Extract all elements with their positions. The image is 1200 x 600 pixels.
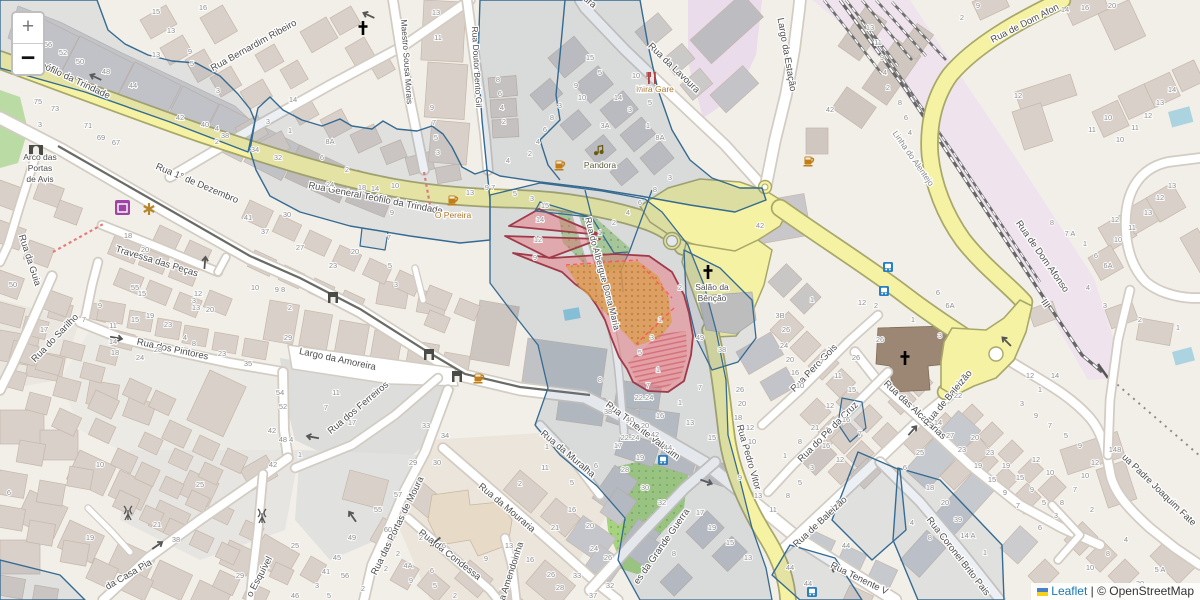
- svg-text:10: 10: [1104, 113, 1112, 122]
- svg-text:11: 11: [541, 463, 549, 472]
- svg-text:11: 11: [109, 321, 117, 330]
- svg-text:1: 1: [983, 548, 987, 557]
- svg-text:5: 5: [388, 261, 392, 270]
- svg-text:33: 33: [422, 421, 430, 430]
- svg-text:4: 4: [626, 208, 630, 217]
- svg-text:1: 1: [810, 295, 814, 304]
- svg-text:Bênção: Bênção: [698, 293, 727, 303]
- svg-text:10: 10: [1114, 235, 1122, 244]
- svg-text:2: 2: [528, 149, 532, 158]
- svg-text:6A: 6A: [945, 301, 954, 310]
- svg-text:44: 44: [842, 541, 850, 550]
- svg-text:18: 18: [124, 231, 132, 240]
- svg-text:7: 7: [387, 233, 391, 242]
- svg-text:48 4: 48 4: [279, 435, 294, 444]
- svg-text:11: 11: [834, 371, 842, 380]
- svg-text:16: 16: [822, 441, 830, 450]
- svg-text:7: 7: [82, 315, 86, 324]
- svg-text:6: 6: [543, 125, 547, 134]
- svg-text:11: 11: [1088, 125, 1096, 134]
- svg-text:3: 3: [1103, 301, 1107, 310]
- svg-text:4A: 4A: [403, 561, 412, 570]
- svg-text:2: 2: [384, 564, 388, 573]
- svg-text:5 A: 5 A: [1155, 565, 1166, 574]
- svg-text:8A: 8A: [655, 133, 664, 142]
- svg-text:1: 1: [678, 398, 682, 407]
- svg-text:13: 13: [432, 8, 440, 17]
- svg-text:52: 52: [279, 402, 287, 411]
- svg-text:15: 15: [726, 538, 734, 547]
- svg-text:29: 29: [409, 458, 417, 467]
- svg-text:8: 8: [1106, 549, 1110, 558]
- svg-text:10: 10: [1081, 471, 1089, 480]
- svg-text:27: 27: [946, 431, 954, 440]
- svg-text:Portas: Portas: [28, 163, 53, 173]
- svg-text:23: 23: [986, 448, 994, 457]
- svg-text:23: 23: [164, 320, 172, 329]
- svg-text:23: 23: [329, 261, 337, 270]
- svg-text:16: 16: [842, 415, 850, 424]
- svg-text:de Avis: de Avis: [26, 174, 53, 184]
- svg-text:42: 42: [268, 426, 276, 435]
- svg-text:41: 41: [244, 213, 252, 222]
- svg-text:6: 6: [1038, 523, 1042, 532]
- svg-text:11: 11: [434, 33, 442, 42]
- svg-text:3: 3: [810, 463, 814, 472]
- svg-text:3: 3: [628, 105, 632, 114]
- svg-text:12: 12: [836, 455, 844, 464]
- svg-text:12: 12: [826, 401, 834, 410]
- svg-text:15: 15: [848, 385, 856, 394]
- svg-text:4: 4: [1086, 283, 1090, 292]
- svg-text:16: 16: [526, 555, 534, 564]
- svg-text:1: 1: [911, 315, 915, 324]
- svg-text:9: 9: [98, 301, 102, 310]
- svg-text:49: 49: [696, 333, 704, 342]
- svg-text:6: 6: [904, 113, 908, 122]
- svg-text:35: 35: [244, 359, 252, 368]
- svg-text:2: 2: [345, 165, 349, 174]
- svg-text:12: 12: [1032, 455, 1040, 464]
- svg-text:29: 29: [236, 571, 244, 580]
- svg-text:6: 6: [936, 288, 940, 297]
- svg-text:2: 2: [396, 549, 400, 558]
- svg-text:26: 26: [604, 553, 612, 562]
- svg-text:25: 25: [916, 448, 924, 457]
- svg-text:55: 55: [374, 505, 382, 514]
- svg-text:18: 18: [734, 413, 742, 422]
- svg-text:7 A: 7 A: [1065, 229, 1076, 238]
- svg-text:30: 30: [641, 483, 649, 492]
- svg-text:6: 6: [320, 153, 324, 162]
- svg-text:5: 5: [434, 133, 438, 142]
- svg-text:1: 1: [545, 442, 549, 451]
- svg-text:42: 42: [176, 113, 184, 122]
- svg-text:9: 9: [409, 576, 413, 585]
- svg-text:12: 12: [858, 298, 866, 307]
- svg-text:50: 50: [76, 57, 84, 66]
- svg-text:20: 20: [206, 305, 214, 314]
- svg-text:37: 37: [261, 227, 269, 236]
- svg-text:17: 17: [696, 508, 704, 517]
- svg-text:44: 44: [786, 563, 794, 572]
- svg-text:13: 13: [744, 553, 752, 562]
- svg-text:8: 8: [598, 375, 602, 384]
- svg-text:9: 9: [1003, 488, 1007, 497]
- svg-text:9: 9: [188, 47, 192, 56]
- svg-text:26: 26: [782, 325, 790, 334]
- svg-text:15: 15: [988, 475, 996, 484]
- svg-text:6A: 6A: [1103, 261, 1112, 270]
- svg-text:9: 9: [976, 1, 980, 10]
- svg-text:10: 10: [251, 283, 259, 292]
- svg-text:14: 14: [1168, 85, 1176, 94]
- svg-text:5: 5: [513, 189, 517, 198]
- svg-text:42: 42: [651, 430, 659, 439]
- svg-text:1: 1: [598, 228, 602, 237]
- svg-text:18: 18: [111, 348, 119, 357]
- svg-text:13: 13: [1156, 98, 1164, 107]
- svg-text:4: 4: [500, 103, 504, 112]
- svg-text:26: 26: [547, 570, 555, 579]
- svg-text:52: 52: [59, 48, 67, 57]
- svg-text:14: 14: [934, 418, 942, 427]
- svg-text:13: 13: [686, 418, 694, 427]
- svg-text:3A: 3A: [600, 121, 609, 130]
- svg-text:9 8: 9 8: [275, 285, 285, 294]
- svg-text:1: 1: [658, 315, 662, 324]
- svg-text:20: 20: [141, 245, 149, 254]
- svg-text:1: 1: [288, 126, 292, 135]
- svg-text:11: 11: [332, 388, 340, 397]
- svg-text:3: 3: [938, 331, 942, 340]
- svg-text:32: 32: [658, 498, 666, 507]
- svg-text:Pandora: Pandora: [584, 160, 616, 170]
- svg-text:60: 60: [384, 525, 392, 534]
- svg-text:1: 1: [1083, 239, 1087, 248]
- svg-text:28: 28: [556, 583, 564, 592]
- svg-text:2: 2: [453, 591, 457, 600]
- svg-text:42: 42: [826, 105, 834, 114]
- svg-text:9: 9: [1030, 485, 1034, 494]
- svg-text:7: 7: [1073, 485, 1077, 494]
- svg-text:3: 3: [394, 280, 398, 289]
- svg-text:8: 8: [496, 75, 500, 84]
- svg-text:3: 3: [266, 117, 270, 126]
- svg-text:12: 12: [1156, 193, 1164, 202]
- svg-text:21: 21: [551, 523, 559, 532]
- svg-text:25: 25: [291, 541, 299, 550]
- svg-text:13: 13: [466, 188, 474, 197]
- svg-text:39: 39: [954, 515, 962, 524]
- svg-text:1: 1: [646, 121, 650, 130]
- svg-text:8: 8: [1050, 218, 1054, 227]
- svg-text:37: 37: [589, 591, 597, 600]
- svg-text:30: 30: [283, 210, 291, 219]
- svg-text:15: 15: [1016, 473, 1024, 482]
- svg-text:19: 19: [146, 311, 154, 320]
- svg-text:5: 5: [433, 581, 437, 590]
- svg-text:69: 69: [97, 133, 105, 142]
- svg-text:15: 15: [131, 315, 139, 324]
- svg-text:10: 10: [578, 93, 586, 102]
- svg-text:15: 15: [708, 433, 716, 442]
- svg-text:4: 4: [536, 137, 540, 146]
- svg-text:4: 4: [1124, 535, 1128, 544]
- svg-text:14 A: 14 A: [960, 531, 975, 540]
- svg-text:2: 2: [215, 137, 219, 146]
- svg-text:44: 44: [804, 579, 812, 588]
- svg-text:32: 32: [606, 581, 614, 590]
- svg-text:9: 9: [738, 473, 742, 482]
- svg-text:9: 9: [1078, 441, 1082, 450]
- svg-text:14: 14: [614, 93, 622, 102]
- svg-text:3: 3: [530, 194, 534, 203]
- svg-text:17: 17: [40, 325, 48, 334]
- svg-text:1: 1: [1176, 323, 1180, 332]
- svg-text:20: 20: [941, 498, 949, 507]
- svg-text:Salão da: Salão da: [695, 282, 729, 292]
- svg-text:9: 9: [484, 554, 488, 563]
- svg-text:2: 2: [1138, 315, 1142, 324]
- svg-text:18: 18: [926, 483, 934, 492]
- svg-text:5: 5: [638, 348, 642, 357]
- svg-text:9 7: 9 7: [485, 183, 495, 192]
- svg-text:3: 3: [1054, 511, 1058, 520]
- svg-text:148: 148: [1109, 445, 1122, 454]
- svg-text:13: 13: [754, 491, 762, 500]
- svg-text:44: 44: [129, 81, 137, 90]
- svg-text:3: 3: [436, 148, 440, 157]
- svg-text:12: 12: [1144, 111, 1152, 120]
- svg-text:4: 4: [183, 333, 187, 342]
- svg-text:14: 14: [536, 215, 544, 224]
- svg-text:12: 12: [1014, 91, 1022, 100]
- svg-text:16: 16: [199, 3, 207, 12]
- svg-text:50: 50: [9, 280, 17, 289]
- svg-text:9: 9: [880, 53, 884, 62]
- svg-text:2: 2: [518, 479, 522, 488]
- svg-text:1: 1: [783, 451, 787, 460]
- svg-text:20: 20: [971, 433, 979, 442]
- svg-text:3: 3: [668, 173, 672, 182]
- svg-text:13: 13: [505, 541, 513, 550]
- svg-text:28: 28: [621, 465, 629, 474]
- svg-text:13: 13: [866, 23, 874, 32]
- svg-text:Arco das: Arco das: [23, 152, 57, 162]
- svg-text:20: 20: [1108, 1, 1116, 10]
- svg-text:54: 54: [276, 388, 284, 397]
- svg-text:7: 7: [324, 403, 328, 412]
- svg-text:6: 6: [7, 488, 11, 497]
- svg-text:14: 14: [371, 184, 379, 193]
- svg-text:7: 7: [820, 357, 824, 366]
- svg-text:11: 11: [874, 38, 882, 47]
- svg-text:8: 8: [192, 339, 196, 348]
- svg-text:15: 15: [541, 201, 549, 210]
- svg-text:2: 2: [874, 301, 878, 310]
- svg-text:12: 12: [746, 423, 754, 432]
- svg-text:13: 13: [1168, 181, 1176, 190]
- svg-text:2: 2: [288, 303, 292, 312]
- svg-text:6: 6: [1094, 251, 1098, 260]
- svg-text:2: 2: [502, 117, 506, 126]
- svg-text:3: 3: [192, 296, 196, 305]
- svg-text:10: 10: [748, 437, 756, 446]
- svg-text:10: 10: [632, 71, 640, 80]
- svg-text:56: 56: [341, 571, 349, 580]
- svg-text:40: 40: [626, 415, 634, 424]
- svg-text:71: 71: [84, 121, 92, 130]
- svg-text:42: 42: [269, 460, 277, 469]
- svg-text:23: 23: [218, 349, 226, 358]
- svg-text:8: 8: [898, 98, 902, 107]
- svg-text:8: 8: [786, 491, 790, 500]
- svg-text:3: 3: [216, 86, 220, 95]
- svg-text:49: 49: [348, 533, 356, 542]
- svg-text:25: 25: [196, 480, 204, 489]
- svg-text:10: 10: [1046, 468, 1054, 477]
- svg-text:34: 34: [441, 431, 449, 440]
- svg-text:20: 20: [786, 355, 794, 364]
- svg-text:4: 4: [910, 518, 914, 527]
- svg-text:7: 7: [432, 118, 436, 127]
- svg-text:10: 10: [796, 381, 804, 390]
- svg-text:11: 11: [1128, 223, 1136, 232]
- svg-text:12: 12: [1026, 371, 1034, 380]
- svg-text:56: 56: [44, 40, 52, 49]
- svg-text:22.24: 22.24: [635, 393, 654, 402]
- svg-text:19: 19: [86, 533, 94, 542]
- svg-text:26: 26: [852, 353, 860, 362]
- svg-text:24: 24: [780, 341, 788, 350]
- svg-text:38: 38: [604, 407, 612, 416]
- svg-text:11: 11: [1131, 123, 1139, 132]
- svg-text:16: 16: [791, 368, 799, 377]
- svg-text:4: 4: [883, 68, 887, 77]
- svg-text:2: 2: [419, 533, 423, 542]
- svg-text:2: 2: [1090, 505, 1094, 514]
- svg-text:1: 1: [656, 365, 660, 374]
- svg-text:38: 38: [172, 535, 180, 544]
- svg-text:24: 24: [326, 180, 334, 189]
- svg-text:17: 17: [348, 418, 356, 427]
- svg-text:67: 67: [112, 138, 120, 147]
- svg-text:4: 4: [506, 156, 510, 165]
- svg-text:5: 5: [1064, 431, 1068, 440]
- svg-text:44: 44: [664, 443, 672, 452]
- svg-text:11: 11: [769, 505, 777, 514]
- svg-text:8: 8: [798, 437, 802, 446]
- svg-text:7: 7: [858, 429, 862, 438]
- svg-text:20: 20: [738, 399, 746, 408]
- svg-text:2: 2: [886, 83, 890, 92]
- svg-text:10: 10: [1086, 563, 1094, 572]
- svg-text:5: 5: [190, 59, 194, 68]
- svg-text:9: 9: [1034, 411, 1038, 420]
- svg-text:20: 20: [351, 247, 359, 256]
- svg-text:13: 13: [167, 26, 175, 35]
- svg-text:20: 20: [586, 521, 594, 530]
- svg-text:3: 3: [1020, 399, 1024, 408]
- svg-text:19: 19: [636, 453, 644, 462]
- svg-text:6: 6: [498, 89, 502, 98]
- svg-text:17: 17: [614, 441, 622, 450]
- svg-text:2: 2: [960, 13, 964, 22]
- svg-text:5: 5: [1042, 498, 1046, 507]
- svg-text:13: 13: [152, 50, 160, 59]
- svg-text:14: 14: [1051, 371, 1059, 380]
- svg-text:7: 7: [1048, 421, 1052, 430]
- svg-text:7: 7: [646, 381, 650, 390]
- svg-text:27: 27: [296, 243, 304, 252]
- svg-text:19: 19: [708, 523, 716, 532]
- svg-text:4: 4: [215, 124, 219, 133]
- svg-text:26: 26: [736, 385, 744, 394]
- svg-text:6: 6: [442, 541, 446, 550]
- svg-text:21: 21: [811, 423, 819, 432]
- svg-text:8: 8: [653, 185, 657, 194]
- svg-text:5: 5: [648, 98, 652, 107]
- svg-text:8: 8: [672, 549, 676, 558]
- svg-text:6: 6: [638, 198, 642, 207]
- svg-text:7: 7: [1016, 501, 1020, 510]
- svg-text:18: 18: [358, 183, 366, 192]
- svg-text:6: 6: [594, 461, 598, 470]
- svg-text:22: 22: [954, 391, 962, 400]
- svg-text:12: 12: [1091, 458, 1099, 467]
- svg-text:23: 23: [958, 445, 966, 454]
- svg-text:55: 55: [131, 283, 139, 292]
- svg-text:24: 24: [590, 544, 598, 553]
- svg-text:38: 38: [718, 345, 726, 354]
- svg-text:14: 14: [109, 337, 117, 346]
- svg-text:2: 2: [612, 218, 616, 227]
- svg-text:48: 48: [102, 67, 110, 76]
- svg-text:41: 41: [322, 567, 330, 576]
- svg-text:4: 4: [908, 128, 912, 137]
- svg-text:24: 24: [136, 353, 144, 362]
- svg-text:3: 3: [558, 101, 562, 110]
- svg-text:73: 73: [51, 104, 59, 113]
- svg-text:2: 2: [361, 584, 365, 593]
- svg-text:16: 16: [568, 505, 576, 514]
- svg-text:12: 12: [1111, 215, 1119, 224]
- svg-text:57: 57: [394, 490, 402, 499]
- svg-text:8: 8: [550, 113, 554, 122]
- svg-text:10: 10: [1116, 135, 1124, 144]
- svg-text:33: 33: [573, 571, 581, 580]
- svg-text:21: 21: [153, 520, 161, 529]
- svg-text:16: 16: [1081, 3, 1089, 12]
- svg-text:9: 9: [533, 253, 537, 262]
- svg-text:75: 75: [34, 97, 42, 106]
- svg-text:9: 9: [430, 103, 434, 112]
- svg-text:O Pereira: O Pereira: [435, 210, 472, 220]
- svg-text:40: 40: [201, 120, 209, 129]
- svg-text:15: 15: [152, 7, 160, 16]
- svg-text:3: 3: [38, 120, 42, 129]
- svg-text:26: 26: [876, 335, 884, 344]
- svg-text:20: 20: [641, 421, 649, 430]
- svg-text:1: 1: [298, 450, 302, 459]
- svg-text:29: 29: [284, 333, 292, 342]
- svg-text:22.24: 22.24: [621, 433, 640, 442]
- svg-text:9: 9: [574, 81, 578, 90]
- svg-text:8A: 8A: [325, 137, 334, 146]
- svg-text:38: 38: [221, 131, 229, 140]
- svg-text:6: 6: [430, 566, 434, 575]
